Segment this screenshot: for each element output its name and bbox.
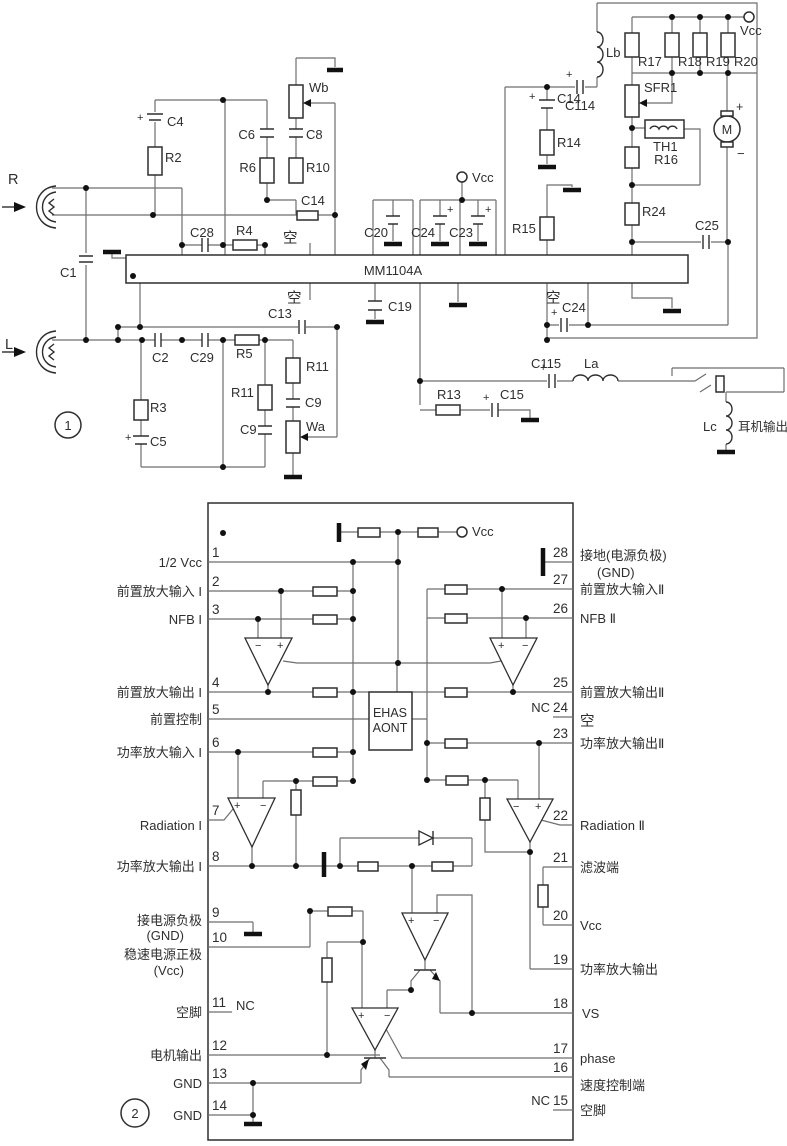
svg-text:1/2 Vcc: 1/2 Vcc <box>159 555 203 570</box>
svg-text:14: 14 <box>212 1098 228 1113</box>
ic-label: MM1104A <box>364 263 423 278</box>
svg-text:前置放大输出 I: 前置放大输出 I <box>117 685 202 700</box>
pin-9: 9接电源负极(GND) <box>137 905 220 943</box>
svg-text:功率放大输出Ⅱ: 功率放大输出Ⅱ <box>580 736 664 751</box>
label-empty-right: 空 <box>546 290 561 307</box>
label-r18: R18 <box>678 54 702 69</box>
label-r2: R2 <box>165 150 182 165</box>
label-r20: R20 <box>734 54 758 69</box>
potentiometer-wb <box>289 85 311 118</box>
svg-text:Radiation I: Radiation I <box>140 818 202 833</box>
label-r24: R24 <box>642 204 666 219</box>
inductor-lc <box>726 402 732 444</box>
svg-text:2: 2 <box>131 1106 138 1121</box>
svg-text:5: 5 <box>212 702 220 717</box>
polarity: + <box>447 204 453 216</box>
svg-text:+: + <box>277 640 283 652</box>
svg-text:15: 15 <box>553 1093 568 1108</box>
label-r17: R17 <box>638 54 662 69</box>
svg-text:+: + <box>234 800 240 812</box>
label-c20: C20 <box>364 225 388 240</box>
label-vcc-right: Vcc <box>740 23 762 38</box>
component-labels: C1 C4 R2 C28 R4 空 Wb C6 C8 R6 R10 C14 空 … <box>60 23 787 449</box>
arrow-icon <box>14 202 26 212</box>
label-c9-a: C9 <box>305 395 322 410</box>
svg-text:NC: NC <box>531 1093 550 1108</box>
label-c23: C23 <box>449 225 473 240</box>
label-c8: C8 <box>306 127 323 142</box>
label-c2: C2 <box>152 350 169 365</box>
thermistor-th1 <box>645 120 684 138</box>
svg-text:3: 3 <box>212 602 220 617</box>
inductor-la <box>573 375 618 381</box>
label-r13: R13 <box>437 387 461 402</box>
svg-text:功率放大输出: 功率放大输出 <box>580 962 658 977</box>
svg-text:速度控制端: 速度控制端 <box>580 1078 645 1093</box>
input-head-r: R <box>2 172 56 228</box>
inductor-lb <box>597 32 603 77</box>
svg-text:26: 26 <box>553 601 568 616</box>
label-r11-b: R11 <box>231 385 254 400</box>
svg-text:前置放大输入 I: 前置放大输入 I <box>117 584 202 599</box>
label-c28: C28 <box>190 225 214 240</box>
label-c29: C29 <box>190 350 214 365</box>
vcc-terminal-right <box>744 12 754 22</box>
input-r-label: R <box>8 172 18 188</box>
svg-text:23: 23 <box>553 726 568 741</box>
label-r6: R6 <box>239 160 256 175</box>
svg-text:−: − <box>255 640 261 652</box>
pin-6: 6功率放大输入 I <box>117 735 220 760</box>
svg-text:13: 13 <box>212 1066 227 1081</box>
svg-text:空: 空 <box>580 713 595 730</box>
svg-text:8: 8 <box>212 849 220 864</box>
label-c1: C1 <box>60 265 77 280</box>
label-c24-right: C24 <box>562 300 586 315</box>
svg-text:+: + <box>358 1010 364 1022</box>
svg-text:21: 21 <box>553 850 568 865</box>
vcc-terminal <box>457 527 467 537</box>
svg-text:NC: NC <box>531 700 550 715</box>
label-r11-a: R11 <box>306 359 329 374</box>
polarity: + <box>125 432 131 444</box>
label-c25: C25 <box>695 218 719 233</box>
label-headphone-out: 耳机输出 <box>738 419 787 434</box>
svg-text:电机输出: 电机输出 <box>150 1048 202 1063</box>
label-lc: Lc <box>703 419 717 434</box>
svg-text:(GND): (GND) <box>597 565 635 580</box>
svg-text:−: − <box>384 1010 390 1022</box>
arrow-icon <box>14 347 26 357</box>
svg-text:空脚: 空脚 <box>176 1005 202 1020</box>
svg-text:−: − <box>260 800 266 812</box>
svg-text:前置控制: 前置控制 <box>150 712 202 727</box>
label-motor: M <box>722 123 732 137</box>
label-c4: C4 <box>167 114 184 129</box>
svg-text:6: 6 <box>212 735 220 750</box>
svg-text:(Vcc): (Vcc) <box>154 963 184 978</box>
label-sfr1: SFR1 <box>644 80 677 95</box>
svg-text:18: 18 <box>553 996 568 1011</box>
svg-text:27: 27 <box>553 572 568 587</box>
label-c14-right: C14 <box>557 91 581 106</box>
label-vcc-mid: Vcc <box>472 170 494 185</box>
svg-text:12: 12 <box>212 1038 227 1053</box>
label-c6: C6 <box>238 127 255 142</box>
svg-text:前置放大输入Ⅱ: 前置放大输入Ⅱ <box>580 582 664 597</box>
svg-text:GND: GND <box>173 1076 202 1091</box>
label-r3: R3 <box>150 400 167 415</box>
svg-text:NC: NC <box>236 998 255 1013</box>
label-c24-mid: C24 <box>411 225 435 240</box>
svg-text:NFB Ⅱ: NFB Ⅱ <box>580 611 616 626</box>
svg-text:功率放大输入 I: 功率放大输入 I <box>117 745 202 760</box>
label-c14-top: C14 <box>301 193 325 208</box>
svg-text:7: 7 <box>212 803 220 818</box>
application-circuit: R L MM1104A <box>0 0 787 500</box>
svg-text:19: 19 <box>553 952 568 967</box>
svg-text:Radiation Ⅱ: Radiation Ⅱ <box>580 818 645 833</box>
polarity: + <box>485 204 491 216</box>
pin-8: 8功率放大输出 I <box>117 849 220 874</box>
svg-text:10: 10 <box>212 930 227 945</box>
svg-text:GND: GND <box>173 1108 202 1123</box>
label-la: La <box>584 356 599 371</box>
svg-text:功率放大输出 I: 功率放大输出 I <box>117 859 202 874</box>
svg-text:+: + <box>535 801 541 813</box>
label-wa: Wa <box>306 419 326 434</box>
svg-text:−: − <box>522 640 528 652</box>
polarity: + <box>137 112 143 124</box>
polarity: + <box>483 392 489 404</box>
svg-text:+: + <box>408 915 414 927</box>
svg-text:11: 11 <box>212 995 226 1010</box>
svg-text:空脚: 空脚 <box>580 1103 606 1118</box>
svg-text:NFB I: NFB I <box>169 612 202 627</box>
svg-text:Vcc: Vcc <box>580 918 602 933</box>
label-r4: R4 <box>236 223 253 238</box>
label-empty-top: 空 <box>283 230 298 247</box>
label-c15: C15 <box>500 387 524 402</box>
junction-dots <box>83 14 731 470</box>
svg-text:接地(电源负极): 接地(电源负极) <box>580 548 667 563</box>
svg-text:2: 2 <box>212 574 220 589</box>
svg-text:9: 9 <box>212 905 220 920</box>
svg-text:1: 1 <box>212 545 220 560</box>
label-vcc-top: Vcc <box>472 524 494 539</box>
svg-text:22: 22 <box>553 808 568 823</box>
svg-text:滤波端: 滤波端 <box>580 860 619 875</box>
svg-text:phase: phase <box>580 1051 615 1066</box>
svg-text:−: − <box>433 915 439 927</box>
label-c5: C5 <box>150 434 167 449</box>
ic-pinout-diagram-main: Vcc − + + − + − − + + − <box>0 500 787 1146</box>
potentiometer-wa <box>286 421 308 453</box>
polarity: + <box>540 362 546 374</box>
input-l-label: L <box>5 337 13 353</box>
label-lb: Lb <box>606 45 620 60</box>
svg-text:+: + <box>498 640 504 652</box>
svg-text:17: 17 <box>553 1041 568 1056</box>
svg-text:(GND): (GND) <box>146 928 184 943</box>
figure-badge-1: 1 <box>55 412 81 438</box>
svg-text:前置放大输出Ⅱ: 前置放大输出Ⅱ <box>580 685 664 700</box>
label-r14: R14 <box>557 135 581 150</box>
svg-text:VS: VS <box>582 1006 600 1021</box>
svg-text:24: 24 <box>553 700 569 715</box>
input-head-l: L <box>2 331 56 373</box>
label-motor-plus: + <box>736 100 743 114</box>
svg-text:28: 28 <box>553 545 568 560</box>
headphone-jack-icon <box>716 376 724 392</box>
bias-control-block: EHAS AONT <box>369 692 412 750</box>
label-empty-bottom: 空 <box>287 290 302 307</box>
polarity: + <box>566 69 572 81</box>
label-r19: R19 <box>706 54 730 69</box>
svg-text:−: − <box>513 801 519 813</box>
label-wb: Wb <box>309 80 329 95</box>
pin-4: 4前置放大输出 I <box>117 675 220 700</box>
figure-badge-2: 2 <box>121 1099 149 1127</box>
svg-text:4: 4 <box>212 675 220 690</box>
label-r10: R10 <box>306 160 330 175</box>
vcc-terminal-mid <box>457 172 467 182</box>
ic-mm1104a: MM1104A <box>126 255 688 283</box>
label-motor-minus: − <box>737 146 745 161</box>
svg-text:20: 20 <box>553 908 568 923</box>
svg-text:25: 25 <box>553 675 568 690</box>
polarity: + <box>529 91 535 103</box>
svg-text:AONT: AONT <box>373 721 408 735</box>
schematic-page: R L MM1104A <box>0 0 787 1146</box>
label-c19: C19 <box>388 299 412 314</box>
svg-text:EHAS: EHAS <box>373 706 407 720</box>
pin-2: 2前置放大输入 I <box>117 574 220 599</box>
svg-text:16: 16 <box>553 1060 568 1075</box>
label-r15: R15 <box>512 221 536 236</box>
svg-text:1: 1 <box>64 418 71 433</box>
label-r16: R16 <box>654 152 678 167</box>
label-c9-b: C9 <box>240 422 257 437</box>
label-r5: R5 <box>236 346 253 361</box>
polarity: + <box>551 307 557 319</box>
svg-text:稳速电源正极: 稳速电源正极 <box>124 947 202 962</box>
label-c13: C13 <box>268 306 292 321</box>
svg-text:接电源负极: 接电源负极 <box>137 913 202 928</box>
